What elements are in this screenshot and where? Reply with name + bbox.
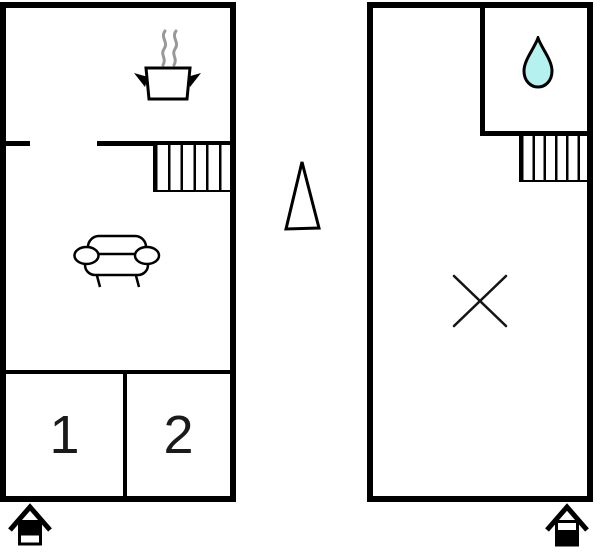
ground-floor-plan xyxy=(367,2,593,502)
kitchen-wall-left-stub xyxy=(6,141,30,146)
room-1-label: 1 xyxy=(6,374,123,496)
upper-level-house-icon xyxy=(8,503,54,547)
room-2-label: 2 xyxy=(127,374,230,496)
water-drop-icon xyxy=(520,36,556,92)
staircase-ground-icon xyxy=(519,136,587,182)
pot-body xyxy=(146,68,190,99)
house-upper-band-empty xyxy=(557,522,578,532)
house-lower-band-filled xyxy=(555,533,579,547)
steam-icon xyxy=(163,31,166,65)
bathroom-wall-vertical xyxy=(480,8,485,136)
sofa-armrest-left xyxy=(75,247,99,264)
house-lower-band-empty xyxy=(20,534,41,544)
steam-icon xyxy=(174,31,177,65)
house-upper-band-filled xyxy=(18,520,42,533)
water-drop-shape xyxy=(524,38,552,87)
floor-plan-canvas: 1 2 xyxy=(0,0,600,552)
upper-floor-plan: 1 2 xyxy=(0,2,236,502)
x-mark-icon xyxy=(452,274,508,328)
ground-level-house-icon xyxy=(545,503,591,547)
triangle-arrow-icon xyxy=(283,160,323,232)
cooking-pot-icon xyxy=(130,28,205,103)
triangle-shape xyxy=(286,162,319,229)
staircase-upper-icon xyxy=(153,145,230,192)
sofa-armrest-right xyxy=(135,247,159,264)
sofa-icon xyxy=(72,230,162,290)
